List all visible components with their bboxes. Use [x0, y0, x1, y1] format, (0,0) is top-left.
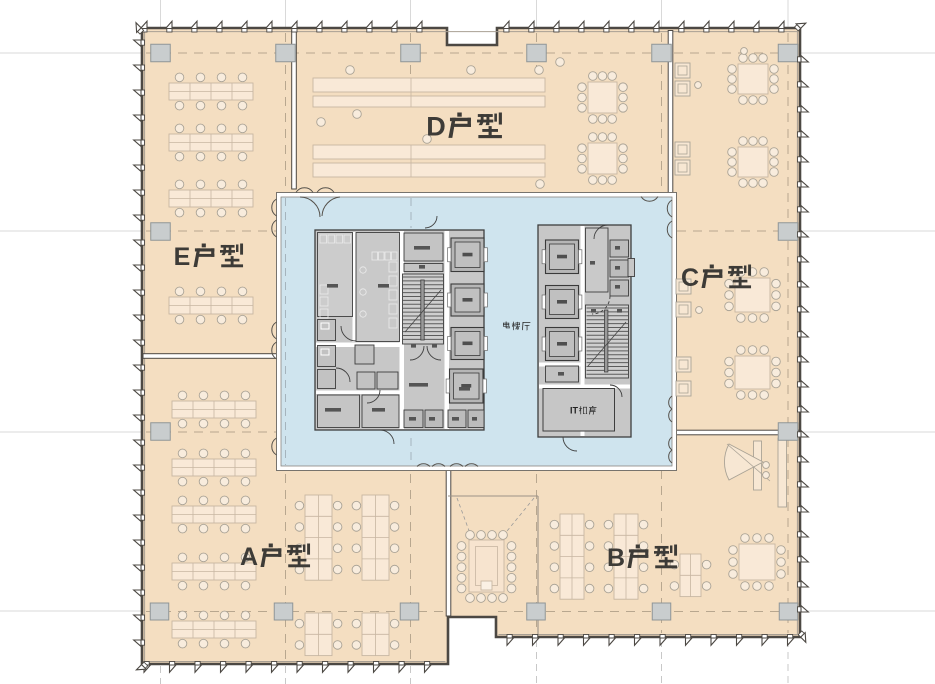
svg-text:B: B [607, 544, 625, 572]
svg-text:IT: IT [570, 406, 579, 416]
svg-text:D: D [426, 112, 446, 142]
svg-text:C: C [681, 264, 699, 292]
svg-text:E: E [174, 243, 191, 271]
svg-text:A: A [240, 543, 258, 571]
